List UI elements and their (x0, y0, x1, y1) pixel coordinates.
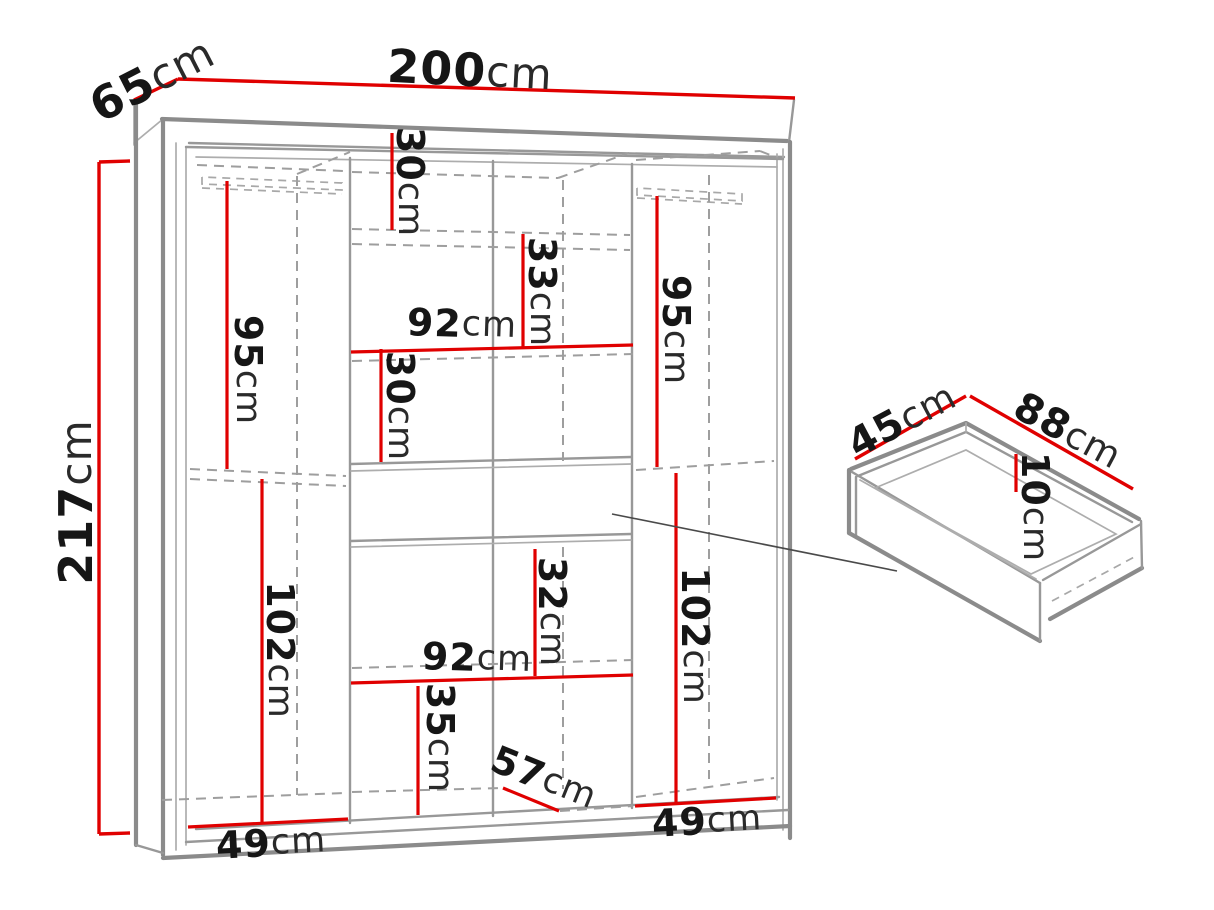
dim-label-57: 57cm (485, 737, 604, 819)
dim-label-30-mid: 30cm (378, 351, 422, 461)
dim-label-49-right: 49cm (651, 796, 763, 846)
dim-label-102-right: 102cm (673, 567, 717, 705)
wardrobe-drawer-compartment (351, 457, 631, 547)
dim-label-92-upper: 92cm (406, 300, 518, 348)
dim-label-depth-65: 65cm (81, 25, 224, 133)
dim-line-height-217 (99, 161, 130, 834)
dim-label-height-217: 217cm (49, 419, 103, 585)
drawer-leader-line (612, 514, 897, 571)
dim-label-45: 45cm (840, 373, 964, 468)
dim-label-49-left: 49cm (215, 818, 327, 868)
dim-label-32: 32cm (530, 557, 574, 667)
dim-label-95-right: 95cm (654, 275, 698, 385)
wardrobe-outline (134, 100, 794, 858)
dim-label-30-top: 30cm (388, 127, 432, 237)
dim-label-33: 33cm (520, 237, 564, 347)
drawer-dimension-labels: 45cm 88cm 10cm (840, 373, 1130, 563)
dim-label-10: 10cm (1013, 452, 1057, 562)
drawer-detail-drawing: 45cm 88cm 10cm (840, 373, 1142, 641)
dim-label-92-lower: 92cm (421, 634, 533, 682)
furniture-dimension-diagram: 217cm 65cm 200cm 95cm 30cm 33cm 92cm 30c… (0, 0, 1214, 910)
wardrobe-hidden-lines (162, 151, 778, 811)
dim-label-95-left: 95cm (226, 315, 270, 425)
dim-label-35: 35cm (418, 683, 462, 793)
wardrobe-partitions (350, 158, 632, 823)
wardrobe-drawing: 217cm 65cm 200cm 95cm 30cm 33cm 92cm 30c… (49, 25, 795, 868)
dim-label-102-left: 102cm (258, 581, 302, 719)
dim-label-width-200: 200cm (386, 39, 554, 102)
